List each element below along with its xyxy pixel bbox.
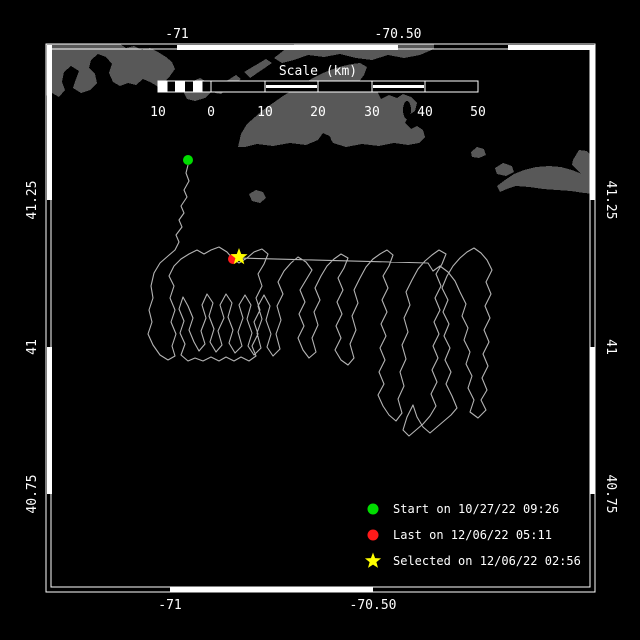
- legend-label: Selected on 12/06/22 02:56: [393, 554, 581, 568]
- lat-label-right: 41: [603, 339, 618, 355]
- lon-label-top: -70.50: [375, 27, 422, 42]
- frame-tick-band-right-0: [590, 45, 595, 200]
- mainland-southcoast: [46, 44, 175, 97]
- lat-label-left: 41.25: [25, 180, 40, 219]
- scalebar-check-cell: [185, 81, 194, 92]
- elizabeth-island-2: [244, 59, 272, 78]
- start-marker[interactable]: [183, 155, 193, 165]
- start-legend-dot-icon: [368, 504, 379, 515]
- legend-item: Last on 12/06/22 05:11: [368, 528, 552, 542]
- frame-tick-band-right-1: [590, 347, 595, 494]
- legend-item: Selected on 12/06/22 02:56: [365, 553, 581, 569]
- scalebar-tick-label: 30: [364, 105, 380, 120]
- scalebar-tick-label: 0: [207, 105, 215, 120]
- scalebar-segment-2: [318, 81, 372, 92]
- scalebar-check-cell: [202, 81, 211, 92]
- scalebar-tick-label: 20: [310, 105, 326, 120]
- lon-label-top: -71: [165, 27, 188, 42]
- lat-label-right: 41.25: [603, 180, 618, 219]
- scalebar-segment-0: [211, 81, 265, 92]
- tracking-map: 1001020304050 Scale (km) -71-70.50-71-70…: [0, 0, 640, 640]
- scalebar-tick-label: 50: [470, 105, 486, 120]
- muskeget-island: [495, 163, 514, 176]
- track-layer: [148, 165, 492, 436]
- scalebar-tick-label: 10: [150, 105, 166, 120]
- scalebar-check-cell: [167, 81, 176, 92]
- map-canvas: 1001020304050 Scale (km) -71-70.50-71-70…: [0, 0, 640, 640]
- gps-track-path[interactable]: [148, 165, 492, 436]
- edgartown-pond: [323, 135, 331, 145]
- scalebar-check-cell: [193, 81, 202, 92]
- scalebar-tick-label: 10: [257, 105, 273, 120]
- scalebar-tick-label: 40: [417, 105, 433, 120]
- scalebar-title: Scale (km): [279, 64, 357, 79]
- legend-item: Start on 10/27/22 09:26: [368, 502, 560, 516]
- selected-legend-star-icon: [365, 553, 381, 568]
- legend-label: Last on 12/06/22 05:11: [393, 528, 552, 542]
- lat-label-left: 40.75: [25, 474, 40, 513]
- scalebar-segment-4: [425, 81, 478, 92]
- scalebar-check-cell: [158, 81, 167, 92]
- legend-label: Start on 10/27/22 09:26: [393, 502, 559, 516]
- nomans-land-island: [249, 190, 266, 203]
- lat-label-left: 41: [25, 339, 40, 355]
- cape-poge-lagoon: [403, 101, 411, 119]
- tuckernuck-island: [471, 147, 486, 158]
- scalebar-segment-stripe-3: [373, 85, 424, 88]
- frame-tick-band-bottom-0: [170, 587, 373, 592]
- lon-label-bottom: -71: [158, 598, 181, 613]
- lat-label-right: 40.75: [603, 474, 618, 513]
- legend: Start on 10/27/22 09:26Last on 12/06/22 …: [365, 502, 581, 568]
- last-legend-dot-icon: [368, 530, 379, 541]
- scalebar-check-cell: [176, 81, 185, 92]
- lon-label-bottom: -70.50: [350, 598, 397, 613]
- scalebar-segment-stripe-1: [266, 85, 317, 88]
